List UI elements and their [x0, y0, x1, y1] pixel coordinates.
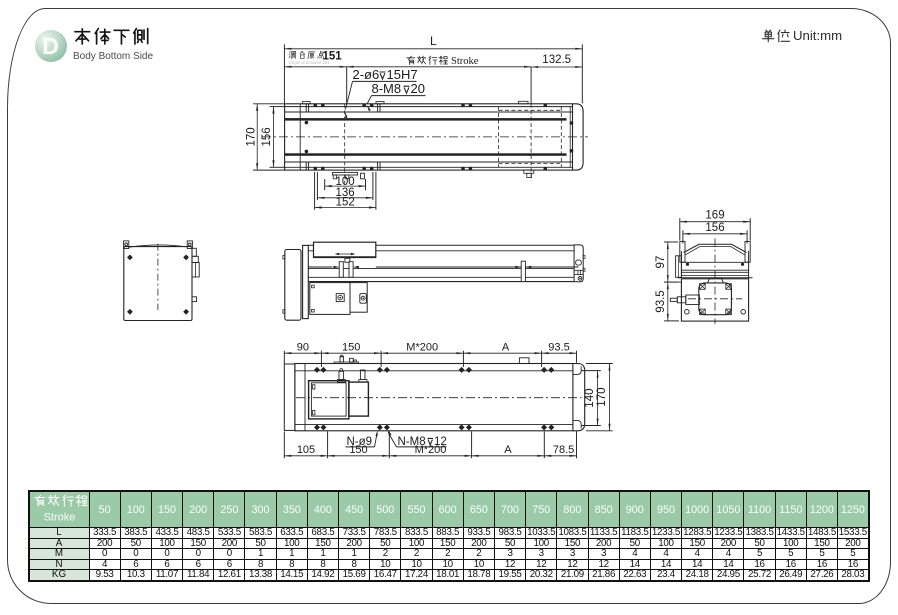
svg-text:132.5: 132.5: [542, 54, 571, 66]
svg-text:15H7: 15H7: [387, 67, 418, 82]
svg-text:Stroke: Stroke: [451, 56, 479, 67]
svg-text:169: 169: [705, 210, 724, 222]
svg-text:170: 170: [596, 388, 608, 407]
svg-text:105: 105: [297, 444, 315, 456]
svg-text:N-M8: N-M8: [398, 436, 426, 448]
svg-text:A: A: [504, 444, 512, 456]
svg-text:A: A: [502, 341, 510, 353]
svg-text:Stroke: Stroke: [43, 512, 75, 524]
svg-text:12: 12: [434, 436, 447, 448]
svg-text:152: 152: [336, 197, 355, 209]
svg-text:93.5: 93.5: [655, 290, 667, 312]
svg-text:N-ø9: N-ø9: [347, 436, 373, 448]
svg-text:2-ø6: 2-ø6: [353, 67, 380, 82]
svg-text:150: 150: [342, 341, 360, 353]
svg-text:78.5: 78.5: [553, 444, 574, 456]
svg-text:170: 170: [245, 127, 257, 146]
svg-text:Origin of actuator:151: Origin of actuator:151: [289, 60, 331, 65]
svg-text:8-M8: 8-M8: [372, 81, 402, 96]
svg-text:140: 140: [584, 389, 596, 408]
svg-text:90: 90: [297, 341, 309, 353]
svg-text:93.5: 93.5: [548, 341, 569, 353]
svg-text:M*200: M*200: [406, 341, 438, 353]
svg-text:L: L: [430, 34, 437, 48]
svg-text:20: 20: [411, 81, 425, 96]
svg-text:97: 97: [655, 256, 667, 269]
svg-text:156: 156: [705, 222, 724, 234]
svg-text:156: 156: [261, 127, 273, 146]
